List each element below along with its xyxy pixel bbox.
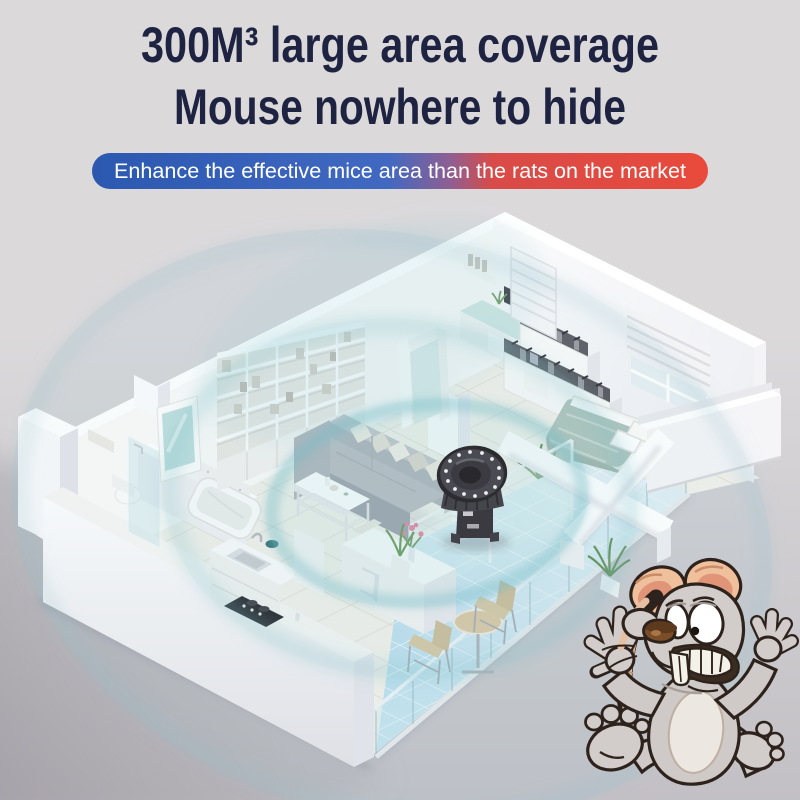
svg-text:Mouse nowhere to hide: Mouse nowhere to hide bbox=[174, 79, 626, 135]
svg-text:300M³ large area coverage: 300M³ large area coverage bbox=[141, 17, 659, 73]
svg-text:Enhance the effective mice are: Enhance the effective mice area than the… bbox=[114, 160, 686, 183]
